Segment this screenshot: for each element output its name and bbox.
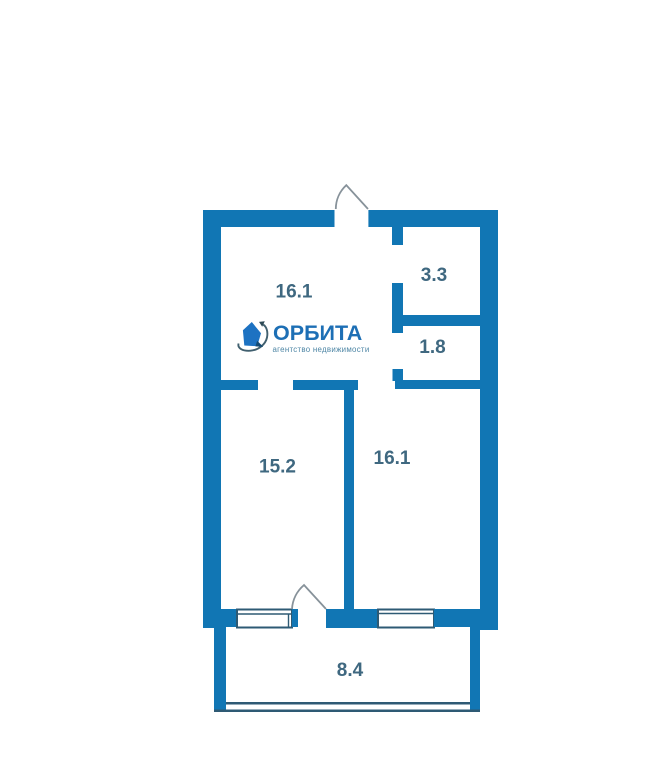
svg-text:1.8: 1.8 xyxy=(419,337,445,358)
svg-text:15.2: 15.2 xyxy=(259,457,296,478)
svg-text:8.4: 8.4 xyxy=(337,660,364,681)
svg-text:3.3: 3.3 xyxy=(421,265,447,286)
svg-text:16.1: 16.1 xyxy=(276,282,313,303)
svg-text:агентство недвижимости: агентство недвижимости xyxy=(273,345,370,354)
svg-text:ОРБИТА: ОРБИТА xyxy=(273,321,362,345)
svg-text:16.1: 16.1 xyxy=(374,448,411,469)
